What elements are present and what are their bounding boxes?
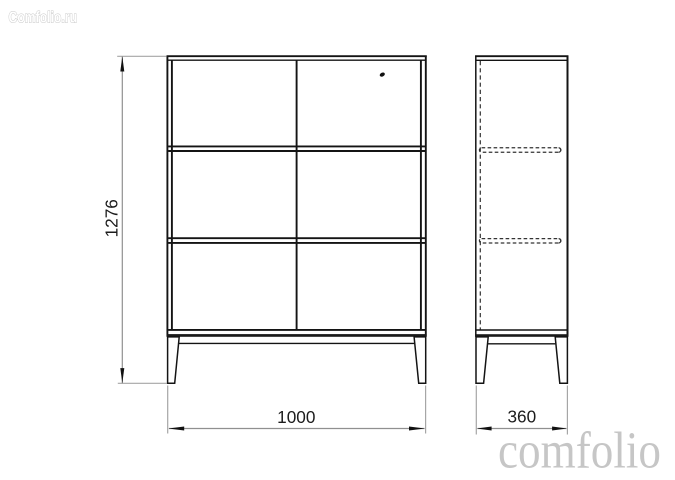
- svg-text:Comfolio.ru: Comfolio.ru: [9, 10, 78, 27]
- svg-text:comfolio: comfolio: [498, 423, 661, 480]
- svg-text:1000: 1000: [277, 407, 315, 427]
- svg-text:1276: 1276: [102, 199, 122, 237]
